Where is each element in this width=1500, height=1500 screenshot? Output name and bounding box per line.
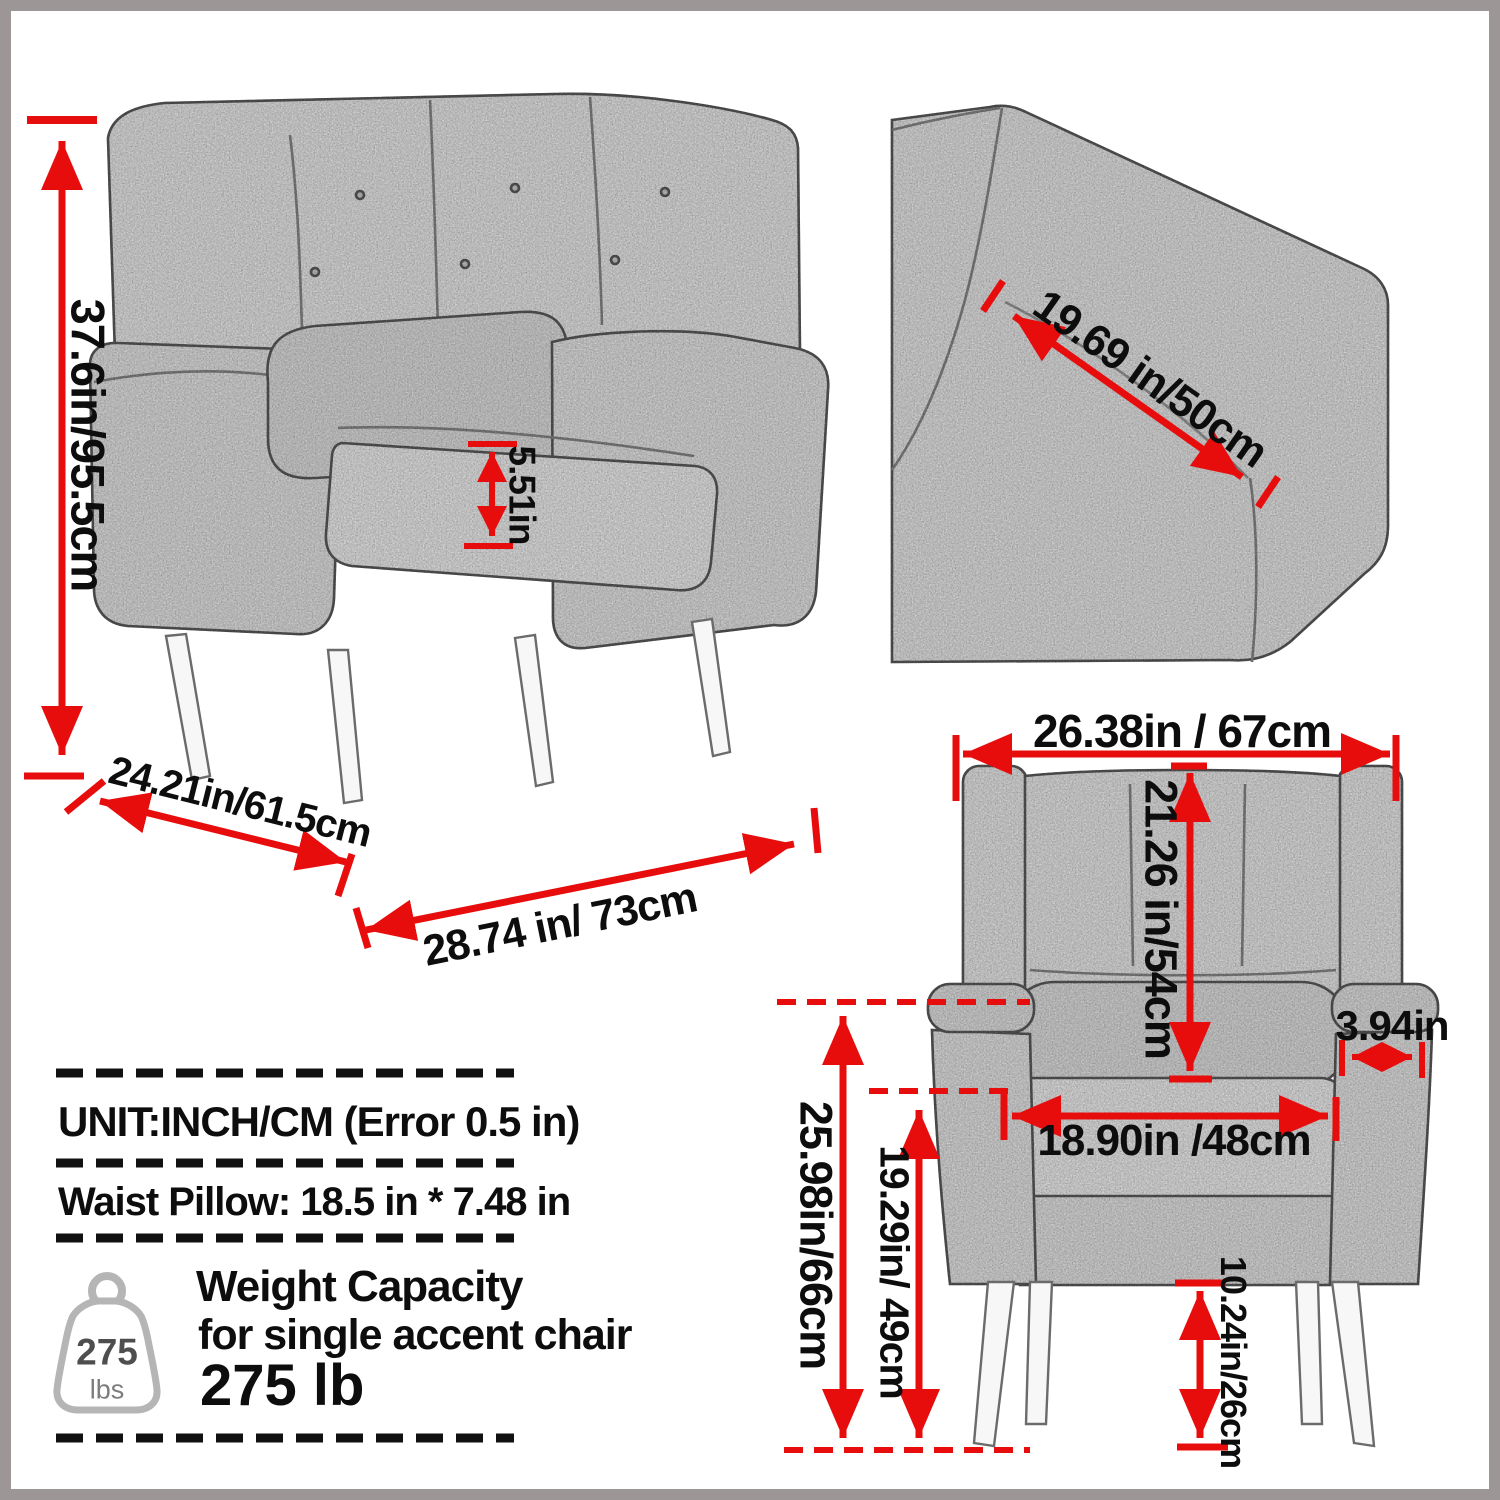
seat-cushion-thickness-label: 5.51in <box>504 446 541 545</box>
seat-to-floor-height-label: 19.29in/ 49cm <box>874 1145 915 1399</box>
weight-icon-value: 275 <box>76 1334 138 1371</box>
weight-capacity-value: 275 lb <box>200 1356 364 1417</box>
overall-height-label: 37.6in/95.5cm <box>65 299 112 592</box>
weight-capacity-title: Weight Capacity <box>196 1264 522 1310</box>
front-chair-legs <box>974 1282 1374 1446</box>
chair-dimension-diagram: 37.6in/95.5cm 5.51in 24.21in/61.5cm 28.7… <box>0 0 1500 1500</box>
waist-pillow-note: Waist Pillow: 18.5 in * 7.48 in <box>58 1181 570 1223</box>
seat-width-label: 18.90in /48cm <box>1037 1119 1310 1163</box>
weight-capacity-subtitle: for single accent chair <box>198 1313 631 1358</box>
weight-icon-unit: lbs <box>90 1377 125 1404</box>
perspective-chair-sketch <box>90 94 828 648</box>
armrest-height-label: 25.98in/66cm <box>794 1101 839 1369</box>
front-overall-width-label: 26.38in / 67cm <box>1033 708 1331 754</box>
perspective-chair-legs <box>166 619 730 803</box>
armrest-width-label: 3.94in <box>1335 1005 1448 1047</box>
backrest-height-label: 21.26 in/54cm <box>1139 779 1184 1059</box>
unit-note: UNIT:INCH/CM (Error 0.5 in) <box>58 1100 579 1144</box>
leg-height-label: 10.24in/26cm <box>1215 1256 1251 1468</box>
